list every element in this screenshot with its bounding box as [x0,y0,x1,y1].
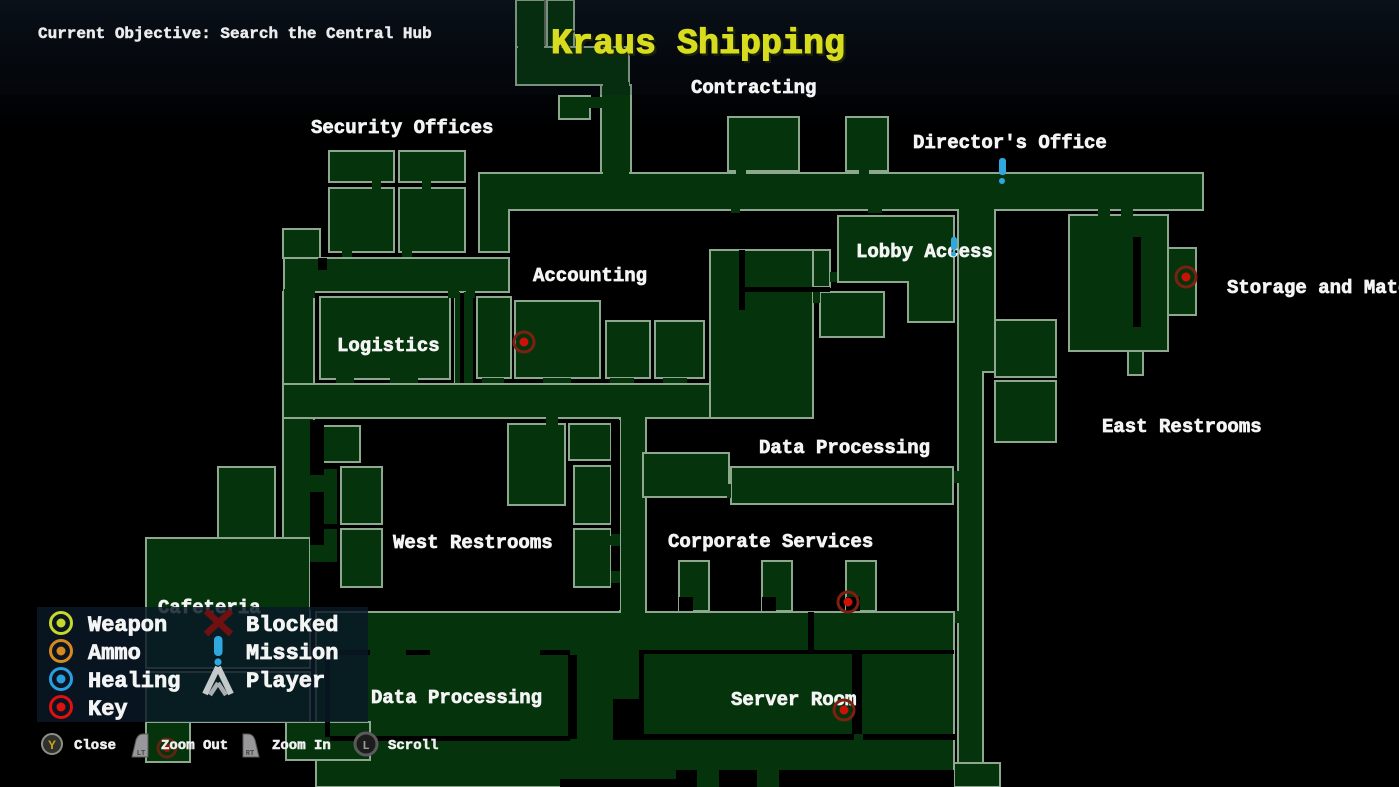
svg-text:Weapon: Weapon [88,613,167,638]
svg-text:Security Offices: Security Offices [311,117,493,139]
svg-text:Lobby Access: Lobby Access [856,241,993,263]
svg-text:L: L [362,739,369,753]
svg-text:Blocked: Blocked [246,613,338,638]
svg-text:Healing: Healing [88,669,180,694]
svg-text:Director's Office: Director's Office [913,132,1107,154]
svg-text:Storage and Mater: Storage and Mater [1227,277,1399,299]
svg-text:Server Room: Server Room [731,689,856,711]
svg-text:Zoom Out: Zoom Out [161,738,228,754]
svg-text:Data Processing: Data Processing [759,437,930,459]
svg-text:RT: RT [246,750,254,758]
svg-text:Player: Player [246,669,325,694]
svg-text:Corporate Services: Corporate Services [668,531,873,553]
svg-text:Y: Y [48,738,56,753]
svg-text:Key: Key [88,697,128,722]
svg-text:Scroll: Scroll [388,738,438,754]
svg-text:Data Processing: Data Processing [371,687,542,709]
svg-text:Kraus Shipping: Kraus Shipping [551,24,845,64]
svg-text:Ammo: Ammo [88,641,141,666]
svg-text:Accounting: Accounting [533,265,647,287]
svg-text:West Restrooms: West Restrooms [393,532,553,554]
svg-text:Close: Close [74,738,116,754]
svg-text:Logistics: Logistics [337,335,440,357]
svg-text:Contracting: Contracting [691,77,816,99]
svg-text:LT: LT [137,750,145,758]
svg-text:Zoom In: Zoom In [272,738,331,754]
svg-text:Current Objective: Search the: Current Objective: Search the Central Hu… [38,25,432,43]
svg-text:Mission: Mission [246,641,338,666]
svg-text:East Restrooms: East Restrooms [1102,416,1262,438]
